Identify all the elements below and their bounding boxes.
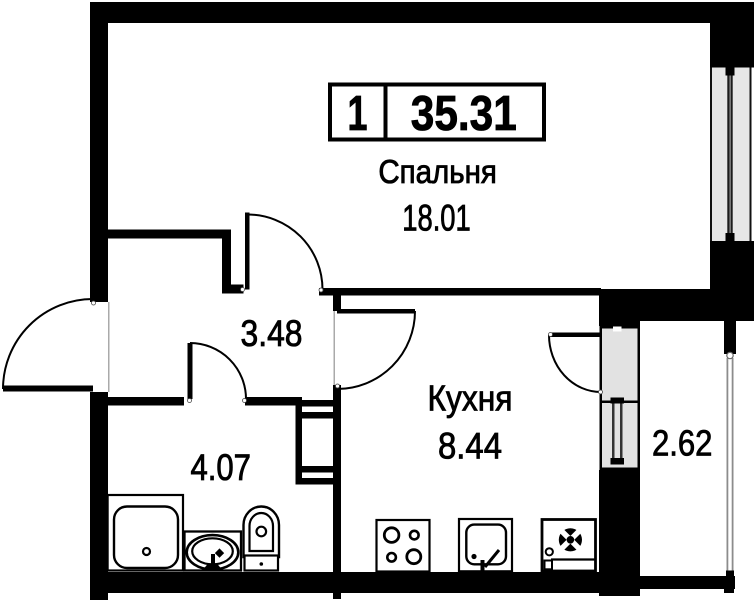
- svg-text:4.07: 4.07: [190, 447, 251, 488]
- svg-text:18.01: 18.01: [402, 198, 471, 239]
- svg-text:35.31: 35.31: [411, 87, 517, 141]
- svg-text:1: 1: [348, 87, 368, 141]
- svg-text:Кухня: Кухня: [428, 378, 513, 419]
- svg-text:8.44: 8.44: [438, 426, 502, 467]
- svg-text:3.48: 3.48: [241, 313, 303, 354]
- svg-text:Спальня: Спальня: [378, 154, 497, 191]
- svg-text:2.62: 2.62: [652, 423, 713, 464]
